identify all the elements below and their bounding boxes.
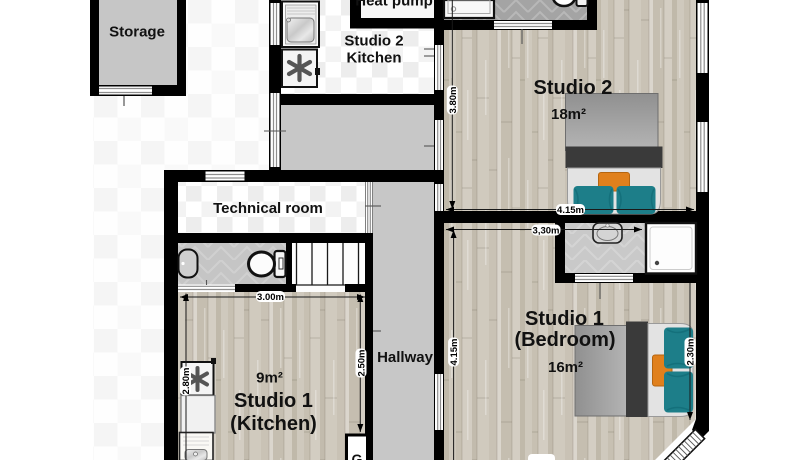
svg-text:Studio 1: Studio 1 — [525, 308, 604, 330]
svg-text:Technical room: Technical room — [213, 200, 323, 217]
svg-text:18m²: 18m² — [551, 106, 586, 123]
svg-text:Studio 2: Studio 2 — [534, 77, 613, 99]
svg-text:2.30m: 2.30m — [686, 339, 697, 366]
svg-text:16m²: 16m² — [548, 359, 583, 376]
svg-text:4.15m: 4.15m — [449, 339, 460, 366]
svg-text:Storage: Storage — [109, 24, 165, 41]
svg-text:(Bedroom): (Bedroom) — [514, 329, 615, 351]
svg-text:3.00m: 3.00m — [257, 292, 284, 303]
svg-text:2.50m: 2.50m — [357, 350, 368, 377]
svg-text:2.80m: 2.80m — [181, 368, 192, 395]
svg-text:3,30m: 3,30m — [533, 226, 560, 237]
svg-text:G: G — [352, 451, 363, 460]
svg-text:Kitchen: Kitchen — [346, 50, 401, 67]
svg-text:(Kitchen): (Kitchen) — [230, 413, 317, 435]
svg-text:Studio 1: Studio 1 — [234, 390, 313, 412]
svg-text:Studio 2: Studio 2 — [344, 33, 403, 50]
svg-text:9m²: 9m² — [256, 370, 283, 387]
svg-text:3.80m: 3.80m — [448, 87, 459, 114]
svg-text:Hallway: Hallway — [377, 349, 434, 366]
svg-text:Heat pump: Heat pump — [355, 0, 433, 10]
svg-text:4.15m: 4.15m — [557, 205, 584, 216]
